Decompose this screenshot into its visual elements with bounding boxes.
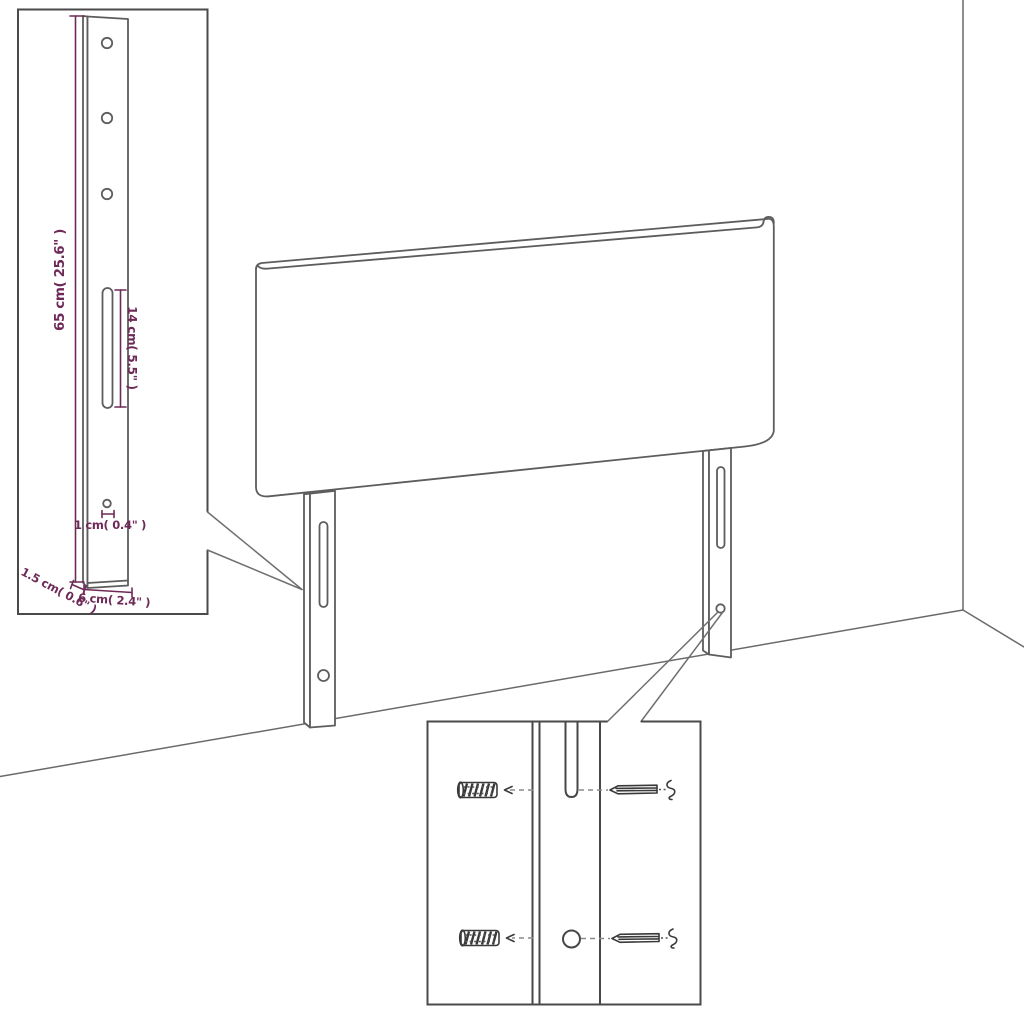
floor-line-right [963, 610, 1024, 647]
bracket-callout-line-bottom [208, 550, 303, 590]
wall-plug-top-icon [458, 782, 497, 798]
leg-strip-closeup [533, 722, 601, 1004]
left-leg [304, 491, 335, 728]
hardware-inset [428, 613, 723, 1005]
right-leg [703, 448, 731, 658]
diagram-canvas: 65 cm( 25.6" ) 14 cm( 5.5" ) 1 cm( 0.4" … [0, 0, 1024, 1024]
bracket-callout-line-top [208, 512, 303, 590]
hole-dimension-label: 1 cm( 0.4" ) [74, 518, 146, 532]
leg-strip-hole [563, 931, 580, 948]
hardware-callout-line-left [608, 613, 718, 722]
bracket-front-face [88, 17, 129, 589]
wall-plug-bottom-icon [460, 930, 499, 946]
hardware-inset-frame [428, 722, 701, 1005]
thickness-dimension-line [72, 585, 85, 591]
headboard-outline [256, 219, 774, 497]
leg-strip-slot [566, 722, 578, 797]
floor-line-left [0, 610, 963, 777]
screw-bottom-icon [612, 929, 677, 948]
hardware-callout-line-right [641, 613, 723, 722]
headboard-panel [256, 217, 774, 496]
screw-top-icon [610, 781, 675, 800]
height-dimension-label: 65 cm( 25.6" ) [52, 229, 68, 331]
product-diagram: 65 cm( 25.6" ) 14 cm( 5.5" ) 1 cm( 0.4" … [0, 0, 1024, 1024]
slot-dimension-label: 14 cm( 5.5" ) [125, 306, 139, 389]
wall-plug-top-leader [505, 787, 534, 794]
wall-plug-bottom-leader [507, 935, 534, 942]
left-leg-front-face [310, 491, 335, 728]
